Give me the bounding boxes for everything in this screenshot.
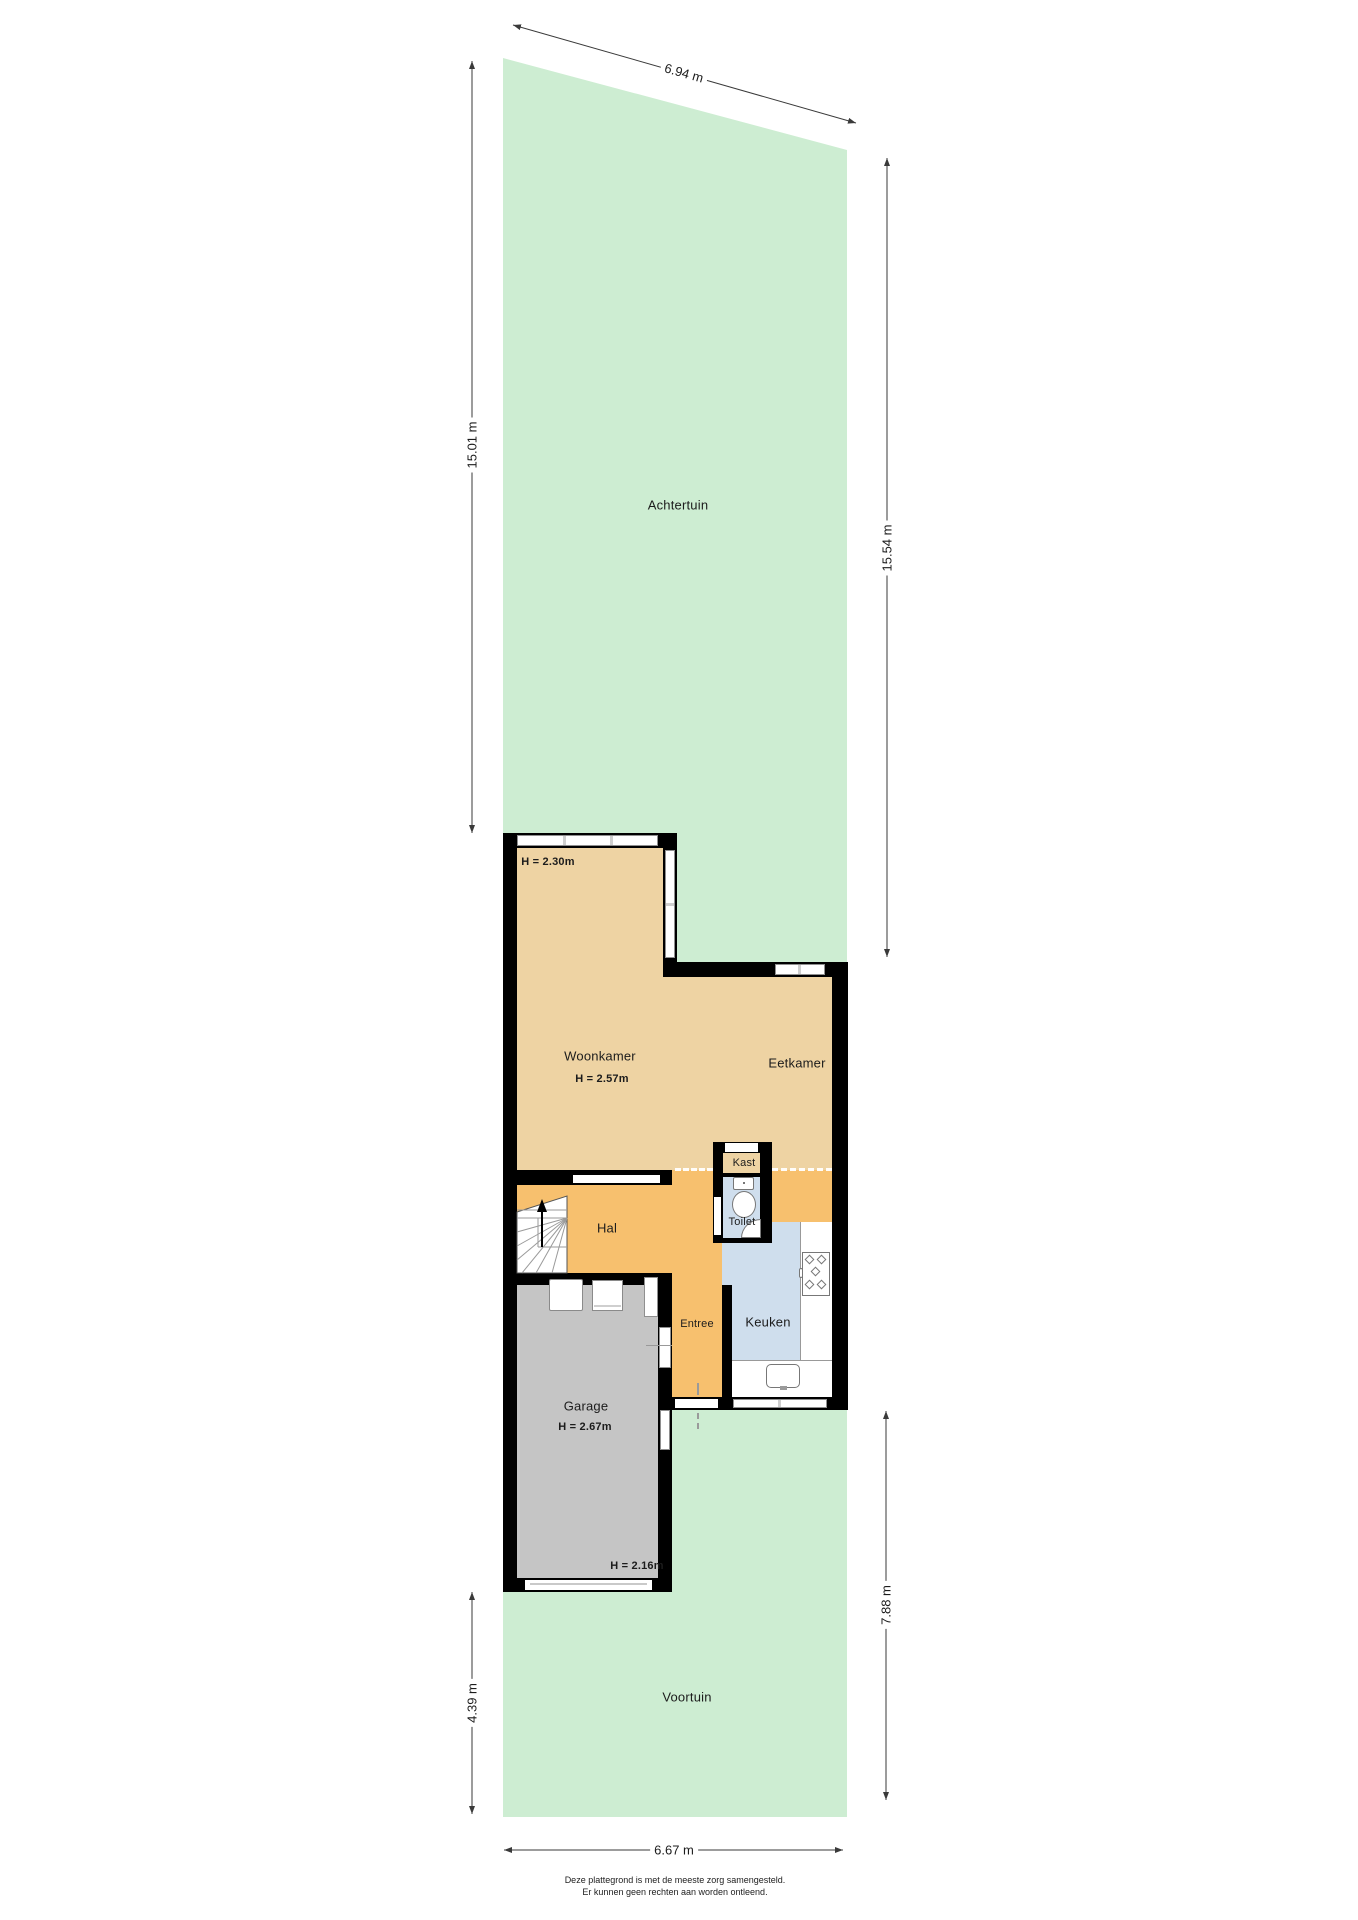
window-mullion <box>610 836 613 845</box>
label-garage-height: H = 2.67m <box>558 1421 611 1433</box>
dimension-bottom: 6.67 m <box>650 1843 698 1858</box>
label-woonkamer: Woonkamer <box>564 1049 636 1064</box>
label-keuken: Keuken <box>745 1315 790 1330</box>
garage-cabinet-2-line <box>594 1305 621 1307</box>
opening-woonkamer-hal <box>573 1175 660 1183</box>
dimension-top: 6.94 m <box>659 59 709 87</box>
door-kast <box>725 1143 758 1152</box>
floor-woonkamer <box>517 848 663 1170</box>
label-bay-height: H = 2.30m <box>521 856 574 868</box>
window-mullion <box>798 965 801 974</box>
label-toilet: Toilet <box>729 1216 756 1228</box>
toilet-bowl <box>732 1191 756 1218</box>
dashed-boundary-left <box>675 1168 713 1171</box>
kitchen-sink <box>766 1364 800 1388</box>
disclaimer-line-1: Deze plattegrond is met de meeste zorg s… <box>565 1875 786 1885</box>
garage-door-panel <box>530 1583 647 1585</box>
label-entree: Entree <box>680 1318 714 1330</box>
dashed-boundary-right <box>772 1168 832 1171</box>
opening-garage-corner <box>644 1277 658 1317</box>
window-garage-side <box>660 1410 670 1450</box>
garage-cabinet-1 <box>549 1279 583 1311</box>
wall-entree-keuken <box>722 1285 732 1397</box>
disclaimer-line-2: Er kunnen geen rechten aan worden ontlee… <box>582 1887 767 1897</box>
dashed-entry-mark-top <box>697 1383 699 1395</box>
stairs <box>516 1194 568 1274</box>
floorplan-canvas: 6.94 m 15.01 m 15.54 m 7.88 m 4.39 m 6.6… <box>0 0 1358 1920</box>
door-toilet <box>714 1197 721 1235</box>
label-hal: Hal <box>597 1221 617 1236</box>
dimension-right-upper: 15.54 m <box>880 521 895 576</box>
floor-hal-sliver <box>713 1243 722 1273</box>
label-garage: Garage <box>564 1399 609 1414</box>
stove-knob <box>799 1268 803 1278</box>
dimension-left-lower: 4.39 m <box>465 1679 480 1727</box>
garage-door <box>525 1580 652 1590</box>
window-mullion <box>666 903 674 906</box>
dimension-right-lower: 7.88 m <box>879 1581 894 1629</box>
toilet-tank-button <box>743 1182 745 1184</box>
dashed-entry-mark-bottom <box>697 1413 699 1429</box>
label-voortuin: Voortuin <box>662 1690 711 1705</box>
window-mullion <box>778 1400 781 1407</box>
kitchen-faucet <box>780 1386 787 1390</box>
label-eetkamer: Eetkamer <box>768 1056 825 1071</box>
window-bay-top <box>517 835 658 846</box>
window-mullion <box>563 836 566 845</box>
door-entree-front <box>675 1399 718 1408</box>
label-garage-height-low: H = 2.16m <box>610 1560 663 1572</box>
label-kast: Kast <box>733 1157 756 1169</box>
dimension-left-upper: 15.01 m <box>465 418 480 473</box>
floor-passage-keuken <box>772 1170 832 1222</box>
label-achtertuin: Achtertuin <box>648 498 709 513</box>
door-swing-line <box>646 1345 672 1346</box>
door-garage-entree <box>659 1327 671 1368</box>
label-woonkamer-height: H = 2.57m <box>575 1073 628 1085</box>
